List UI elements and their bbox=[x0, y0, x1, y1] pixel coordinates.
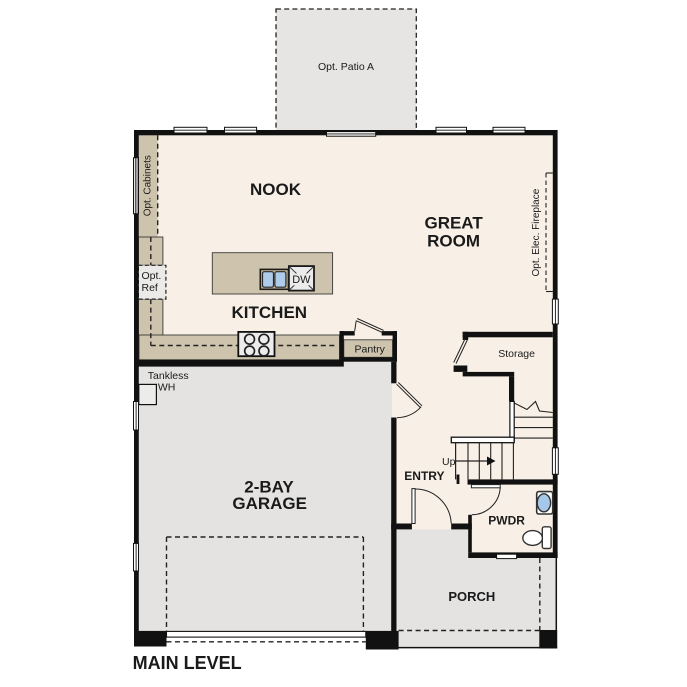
svg-text:DW: DW bbox=[292, 274, 311, 286]
svg-text:Storage: Storage bbox=[498, 348, 535, 360]
svg-text:KITCHEN: KITCHEN bbox=[232, 303, 308, 322]
svg-text:WH: WH bbox=[158, 382, 176, 394]
svg-text:Opt. Patio A: Opt. Patio A bbox=[318, 61, 374, 73]
svg-text:PWDR: PWDR bbox=[488, 513, 525, 527]
svg-text:Up: Up bbox=[442, 456, 456, 468]
svg-text:Pantry: Pantry bbox=[355, 343, 386, 355]
svg-text:Opt.: Opt. bbox=[142, 270, 162, 282]
svg-text:Opt. Cabinets: Opt. Cabinets bbox=[142, 155, 153, 216]
svg-text:Opt. Elec. Fireplace: Opt. Elec. Fireplace bbox=[531, 188, 542, 276]
svg-text:NOOK: NOOK bbox=[250, 180, 302, 199]
svg-text:Tankless: Tankless bbox=[148, 370, 189, 382]
svg-text:ROOM: ROOM bbox=[427, 231, 480, 250]
svg-text:GREAT: GREAT bbox=[424, 214, 483, 233]
svg-text:PORCH: PORCH bbox=[448, 589, 495, 604]
svg-text:Ref: Ref bbox=[142, 282, 158, 294]
svg-text:ENTRY: ENTRY bbox=[404, 469, 444, 483]
svg-text:MAIN LEVEL: MAIN LEVEL bbox=[133, 653, 242, 673]
svg-text:GARAGE: GARAGE bbox=[232, 494, 307, 513]
